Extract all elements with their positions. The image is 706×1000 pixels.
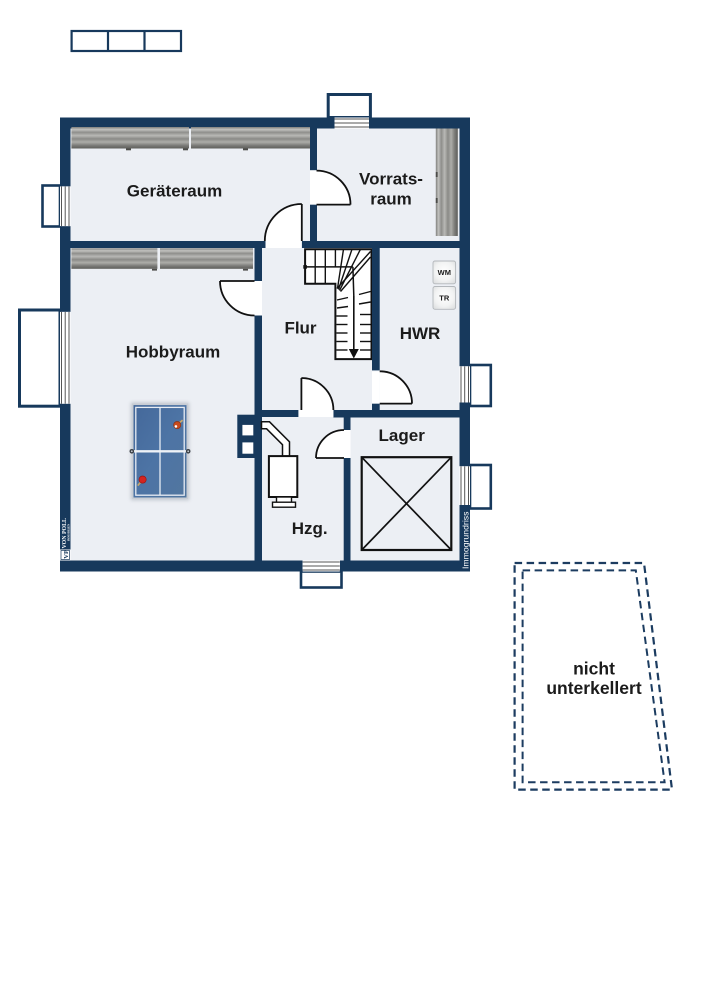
svg-text:WM: WM: [438, 268, 451, 277]
svg-text:TR: TR: [439, 293, 450, 302]
svg-text:IMMOBILIEN: IMMOBILIEN: [67, 524, 70, 541]
svg-text:Vorrats-: Vorrats-: [359, 169, 423, 188]
svg-text:Hzg.: Hzg.: [292, 519, 328, 538]
svg-text:Immogrundriss: Immogrundriss: [460, 511, 470, 569]
svg-text:Geräteraum: Geräteraum: [127, 181, 222, 200]
svg-text:Lager: Lager: [379, 426, 426, 445]
svg-text:raum: raum: [370, 190, 412, 209]
svg-text:VP: VP: [63, 550, 70, 559]
svg-text:Flur: Flur: [284, 318, 316, 337]
svg-text:nicht: nicht: [573, 658, 615, 678]
svg-text:Hobbyraum: Hobbyraum: [126, 343, 220, 362]
svg-text:HWR: HWR: [400, 324, 441, 343]
svg-text:unterkellert: unterkellert: [546, 678, 641, 698]
